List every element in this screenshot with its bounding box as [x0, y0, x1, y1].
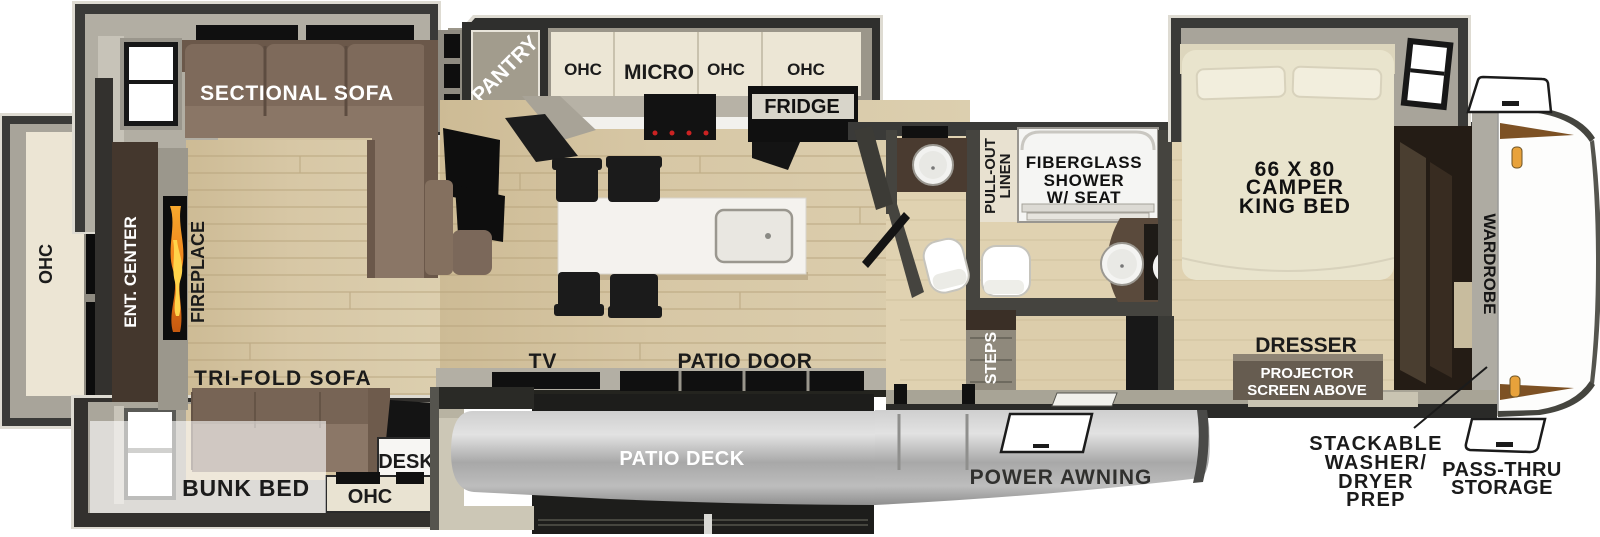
svg-text:BUNK BED: BUNK BED: [182, 475, 310, 501]
svg-text:KING BED: KING BED: [1239, 195, 1351, 218]
svg-text:MICRO: MICRO: [624, 61, 694, 84]
svg-text:POWER AWNING: POWER AWNING: [970, 466, 1153, 489]
svg-text:W/ SEAT: W/ SEAT: [1047, 188, 1121, 207]
svg-text:PREP: PREP: [1346, 489, 1406, 511]
svg-text:OHC: OHC: [707, 60, 745, 79]
svg-text:PROJECTOR: PROJECTOR: [1260, 365, 1353, 382]
svg-text:FIBERGLASS: FIBERGLASS: [1026, 153, 1143, 172]
svg-text:OHC: OHC: [564, 60, 602, 79]
svg-text:SCREEN ABOVE: SCREEN ABOVE: [1247, 382, 1366, 399]
svg-text:WARDROBE: WARDROBE: [1480, 213, 1499, 314]
svg-text:OHC: OHC: [36, 244, 56, 284]
svg-text:OHC: OHC: [348, 486, 392, 508]
svg-text:DRESSER: DRESSER: [1255, 334, 1357, 357]
svg-text:SECTIONAL SOFA: SECTIONAL SOFA: [200, 82, 394, 105]
svg-text:FRIDGE: FRIDGE: [764, 96, 840, 118]
svg-text:PATIO DOOR: PATIO DOOR: [678, 350, 813, 373]
svg-text:LINEN: LINEN: [997, 154, 1014, 199]
svg-text:STEPS: STEPS: [983, 331, 1000, 384]
svg-text:OHC: OHC: [787, 60, 825, 79]
svg-text:ENT. CENTER: ENT. CENTER: [121, 216, 140, 327]
svg-text:DESK: DESK: [378, 451, 434, 473]
svg-text:FIREPLACE: FIREPLACE: [188, 221, 208, 323]
svg-text:TV: TV: [529, 350, 558, 373]
svg-text:PATIO DECK: PATIO DECK: [619, 448, 744, 470]
svg-text:TRI-FOLD SOFA: TRI-FOLD SOFA: [194, 367, 372, 390]
svg-text:STORAGE: STORAGE: [1451, 477, 1553, 499]
